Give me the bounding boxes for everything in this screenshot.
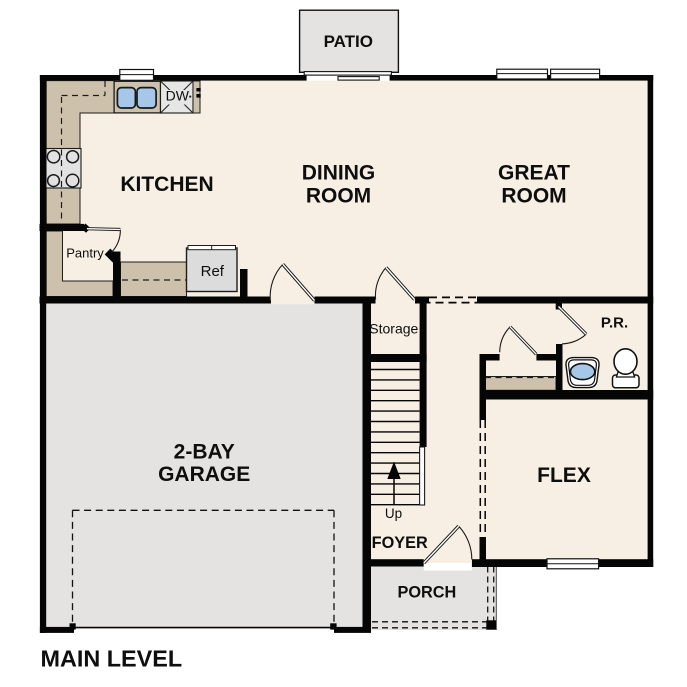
svg-text:GREAT: GREAT — [498, 162, 570, 185]
svg-text:Storage: Storage — [369, 321, 418, 337]
svg-text:DINING: DINING — [302, 161, 376, 184]
svg-text:Up: Up — [385, 506, 402, 521]
svg-text:PATIO: PATIO — [324, 32, 373, 51]
svg-text:Ref: Ref — [201, 263, 225, 280]
svg-text:ROOM: ROOM — [501, 184, 566, 207]
svg-text:FOYER: FOYER — [372, 534, 428, 552]
svg-text:PORCH: PORCH — [397, 584, 456, 602]
svg-text:DW: DW — [166, 88, 190, 104]
svg-text:P.R.: P.R. — [601, 315, 628, 332]
svg-text:KITCHEN: KITCHEN — [120, 173, 213, 196]
svg-text:MAIN LEVEL: MAIN LEVEL — [41, 646, 183, 672]
svg-text:FLEX: FLEX — [537, 464, 591, 487]
svg-text:2-BAY: 2-BAY — [174, 441, 235, 464]
svg-text:ROOM: ROOM — [306, 184, 371, 207]
svg-text:GARAGE: GARAGE — [158, 463, 250, 486]
svg-text:Pantry: Pantry — [66, 246, 104, 261]
